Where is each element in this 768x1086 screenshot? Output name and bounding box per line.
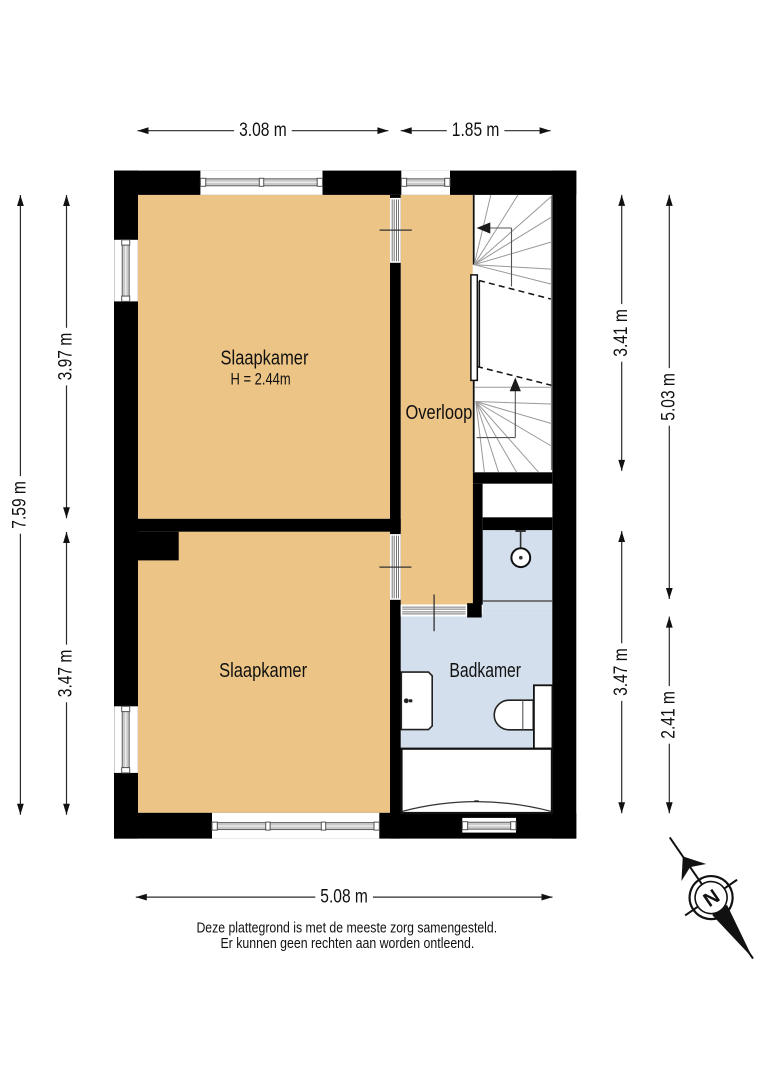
svg-text:3.08 m: 3.08 m bbox=[239, 120, 287, 141]
svg-text:7.59 m: 7.59 m bbox=[10, 481, 31, 529]
svg-text:Deze plattegrond is met de mee: Deze plattegrond is met de meeste zorg s… bbox=[196, 920, 497, 937]
svg-text:Slaapkamer: Slaapkamer bbox=[219, 660, 307, 682]
svg-text:H = 2.44m: H = 2.44m bbox=[231, 370, 291, 389]
svg-text:3.47 m: 3.47 m bbox=[611, 648, 632, 696]
svg-text:5.03 m: 5.03 m bbox=[659, 373, 680, 421]
svg-text:Overloop: Overloop bbox=[406, 402, 473, 424]
svg-text:5.08 m: 5.08 m bbox=[320, 886, 368, 907]
svg-text:1.85 m: 1.85 m bbox=[452, 120, 500, 141]
svg-text:Slaapkamer: Slaapkamer bbox=[221, 347, 309, 369]
svg-text:2.41 m: 2.41 m bbox=[658, 691, 679, 739]
svg-text:3.47 m: 3.47 m bbox=[56, 650, 77, 698]
svg-text:Er kunnen geen rechten aan wor: Er kunnen geen rechten aan worden ontlee… bbox=[220, 935, 474, 952]
svg-text:3.97 m: 3.97 m bbox=[56, 333, 77, 381]
svg-text:3.41 m: 3.41 m bbox=[611, 309, 632, 357]
svg-text:Badkamer: Badkamer bbox=[449, 660, 521, 682]
